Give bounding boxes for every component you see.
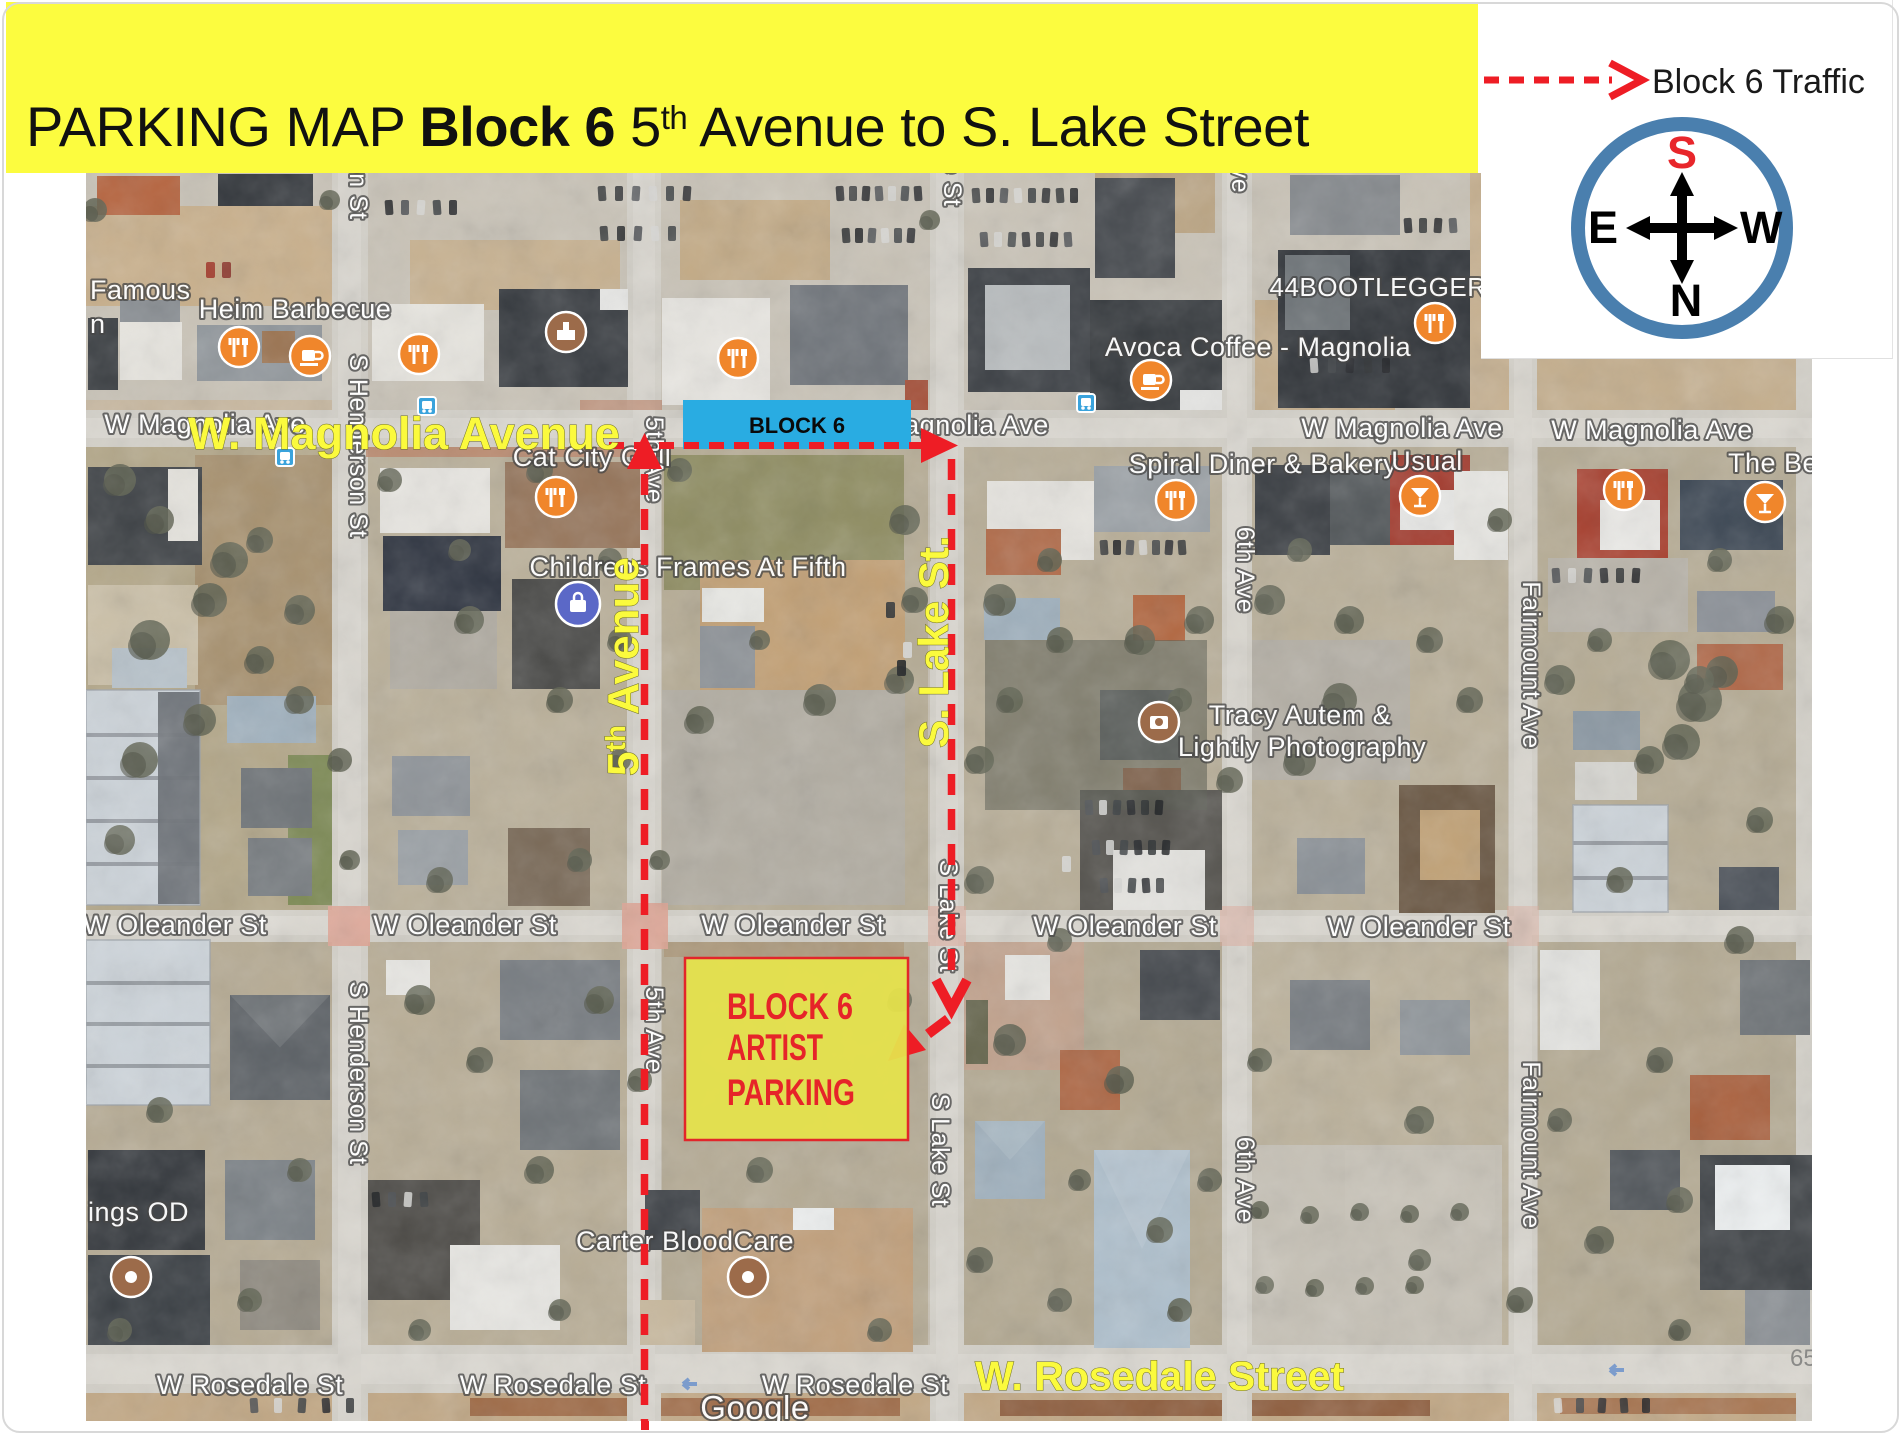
svg-text:Google: Google: [700, 1389, 809, 1421]
svg-text:ings OD: ings OD: [88, 1197, 189, 1227]
svg-text:Spiral Diner & Bakery: Spiral Diner & Bakery: [1129, 449, 1398, 479]
svg-text:W Magnolia Ave: W Magnolia Ave: [1301, 413, 1503, 443]
svg-text:S Henderson St: S Henderson St: [344, 173, 372, 220]
svg-text:Fairmount Ave: Fairmount Ave: [1517, 581, 1545, 748]
svg-text:S Lake St: S Lake St: [938, 173, 966, 206]
svg-text:W. Magnolia Avenue: W. Magnolia Avenue: [188, 408, 620, 459]
svg-text:Famous: Famous: [90, 275, 191, 305]
svg-text:Tracy Autem &: Tracy Autem &: [1209, 700, 1392, 730]
svg-text:Fairmount Ave: Fairmount Ave: [1517, 1061, 1545, 1228]
svg-text:Block 6 Traffic: Block 6 Traffic: [1652, 63, 1865, 101]
svg-text:W Rosedale St: W Rosedale St: [157, 1370, 344, 1400]
svg-text:6th Ave: 6th Ave: [1226, 173, 1254, 193]
svg-text:6th Ave: 6th Ave: [1231, 527, 1259, 613]
svg-text:The Be: The Be: [1728, 448, 1812, 478]
svg-text:W Oleander St: W Oleander St: [1033, 911, 1217, 941]
svg-text:W Rosedale St: W Rosedale St: [460, 1370, 647, 1400]
svg-text:Avoca Coffee - Magnolia: Avoca Coffee - Magnolia: [1105, 332, 1412, 362]
svg-text:n: n: [90, 309, 106, 339]
svg-text:44BOOTLEGGER: 44BOOTLEGGER: [1270, 272, 1487, 302]
svg-text:ARTIST: ARTIST: [727, 1027, 823, 1068]
svg-text:W. Rosedale Street: W. Rosedale Street: [975, 1353, 1344, 1399]
svg-text:65: 65: [1790, 1345, 1812, 1372]
svg-text:W Magnolia Ave: W Magnolia Ave: [1551, 415, 1753, 445]
svg-text:Childrens Frames At Fifth: Childrens Frames At Fifth: [529, 552, 846, 582]
svg-text:W: W: [1740, 202, 1783, 253]
svg-text:BLOCK 6: BLOCK 6: [749, 413, 845, 438]
svg-text:S: S: [1667, 127, 1697, 178]
svg-text:6th Ave: 6th Ave: [1231, 1137, 1259, 1223]
svg-text:Carter BloodCare: Carter BloodCare: [576, 1226, 794, 1256]
svg-text:W Oleander St: W Oleander St: [86, 910, 267, 940]
svg-text:Usual: Usual: [1391, 446, 1463, 476]
svg-text:S Lake St: S Lake St: [926, 1094, 954, 1207]
svg-text:Heim Barbecue: Heim Barbecue: [199, 294, 392, 324]
svg-text:W Oleander St: W Oleander St: [373, 910, 557, 940]
svg-text:S. Lake St.: S. Lake St.: [910, 536, 957, 748]
svg-text:W Oleander St: W Oleander St: [1327, 912, 1511, 942]
svg-text:PARKING: PARKING: [727, 1072, 855, 1113]
svg-text:E: E: [1588, 202, 1618, 253]
svg-text:W Oleander St: W Oleander St: [701, 910, 885, 940]
svg-text:S Henderson St: S Henderson St: [344, 981, 372, 1165]
svg-text:Lightly Photography: Lightly Photography: [1178, 732, 1426, 762]
svg-text:BLOCK 6: BLOCK 6: [727, 986, 853, 1027]
svg-text:N: N: [1670, 275, 1703, 326]
